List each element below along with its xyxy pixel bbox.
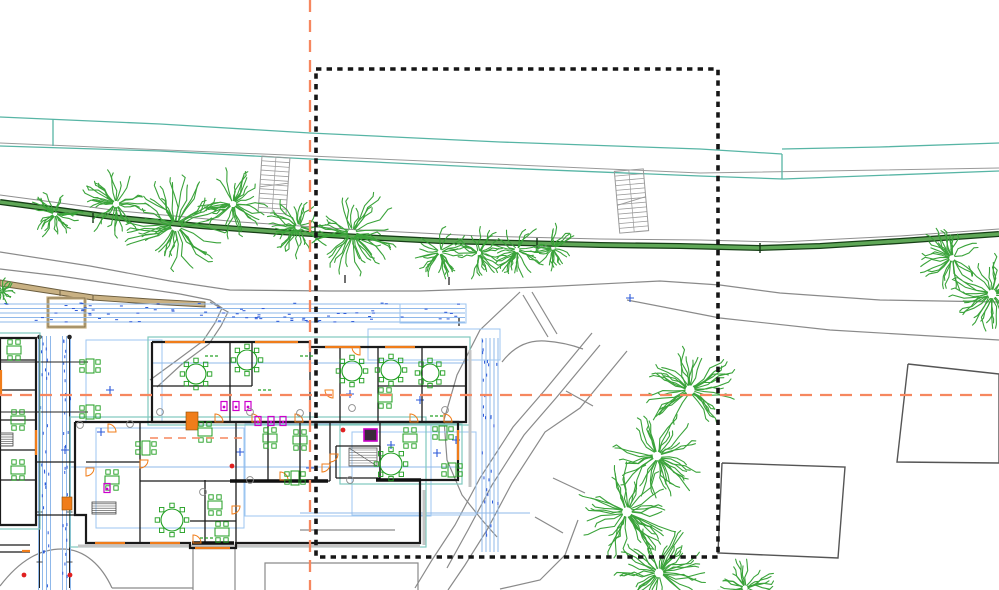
cad-viewport (0, 0, 999, 590)
red-marker (230, 464, 235, 469)
cad-canvas (0, 0, 999, 590)
wc-fixture (106, 488, 109, 491)
dim-dot (67, 335, 72, 340)
red-marker (68, 573, 73, 578)
red-marker (341, 428, 346, 433)
elevator (364, 429, 377, 441)
wc-fixture (235, 406, 238, 409)
orange-fixture (186, 412, 198, 430)
wc-fixture (257, 421, 260, 424)
tree-branch (3, 291, 13, 292)
background (0, 0, 999, 590)
orange-fixture (62, 497, 72, 510)
wc-fixture (282, 421, 285, 424)
wc-fixture (247, 406, 250, 409)
red-marker (22, 573, 27, 578)
wc-fixture (270, 421, 273, 424)
wc-fixture (223, 406, 226, 409)
